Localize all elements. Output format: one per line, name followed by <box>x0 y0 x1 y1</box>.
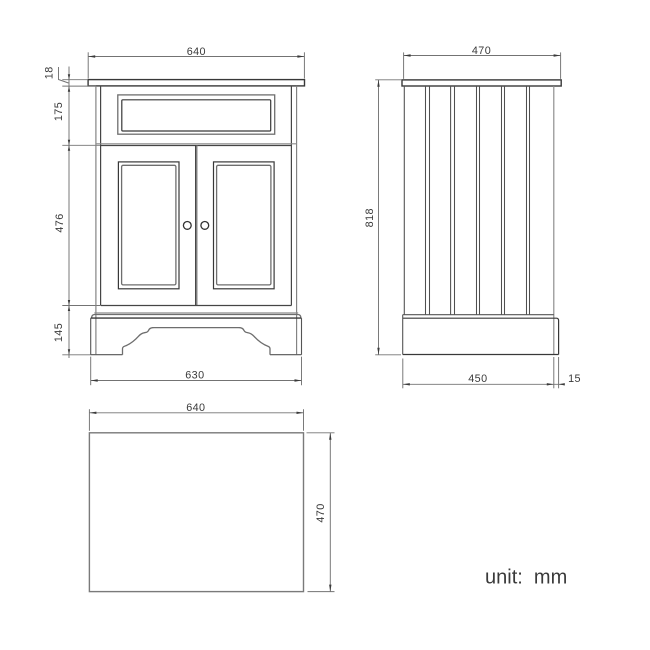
svg-text:450: 450 <box>468 373 487 385</box>
svg-text:15: 15 <box>568 373 581 385</box>
svg-text:640: 640 <box>187 46 206 58</box>
svg-text:476: 476 <box>54 213 66 232</box>
svg-text:145: 145 <box>53 323 65 342</box>
svg-text:470: 470 <box>472 45 491 57</box>
svg-text:470: 470 <box>315 503 327 522</box>
svg-text:18: 18 <box>44 66 56 79</box>
svg-text:unit: mm: unit: mm <box>485 567 567 589</box>
svg-text:175: 175 <box>53 102 65 121</box>
svg-text:818: 818 <box>364 208 376 227</box>
svg-text:640: 640 <box>186 402 205 414</box>
svg-text:630: 630 <box>185 370 204 382</box>
